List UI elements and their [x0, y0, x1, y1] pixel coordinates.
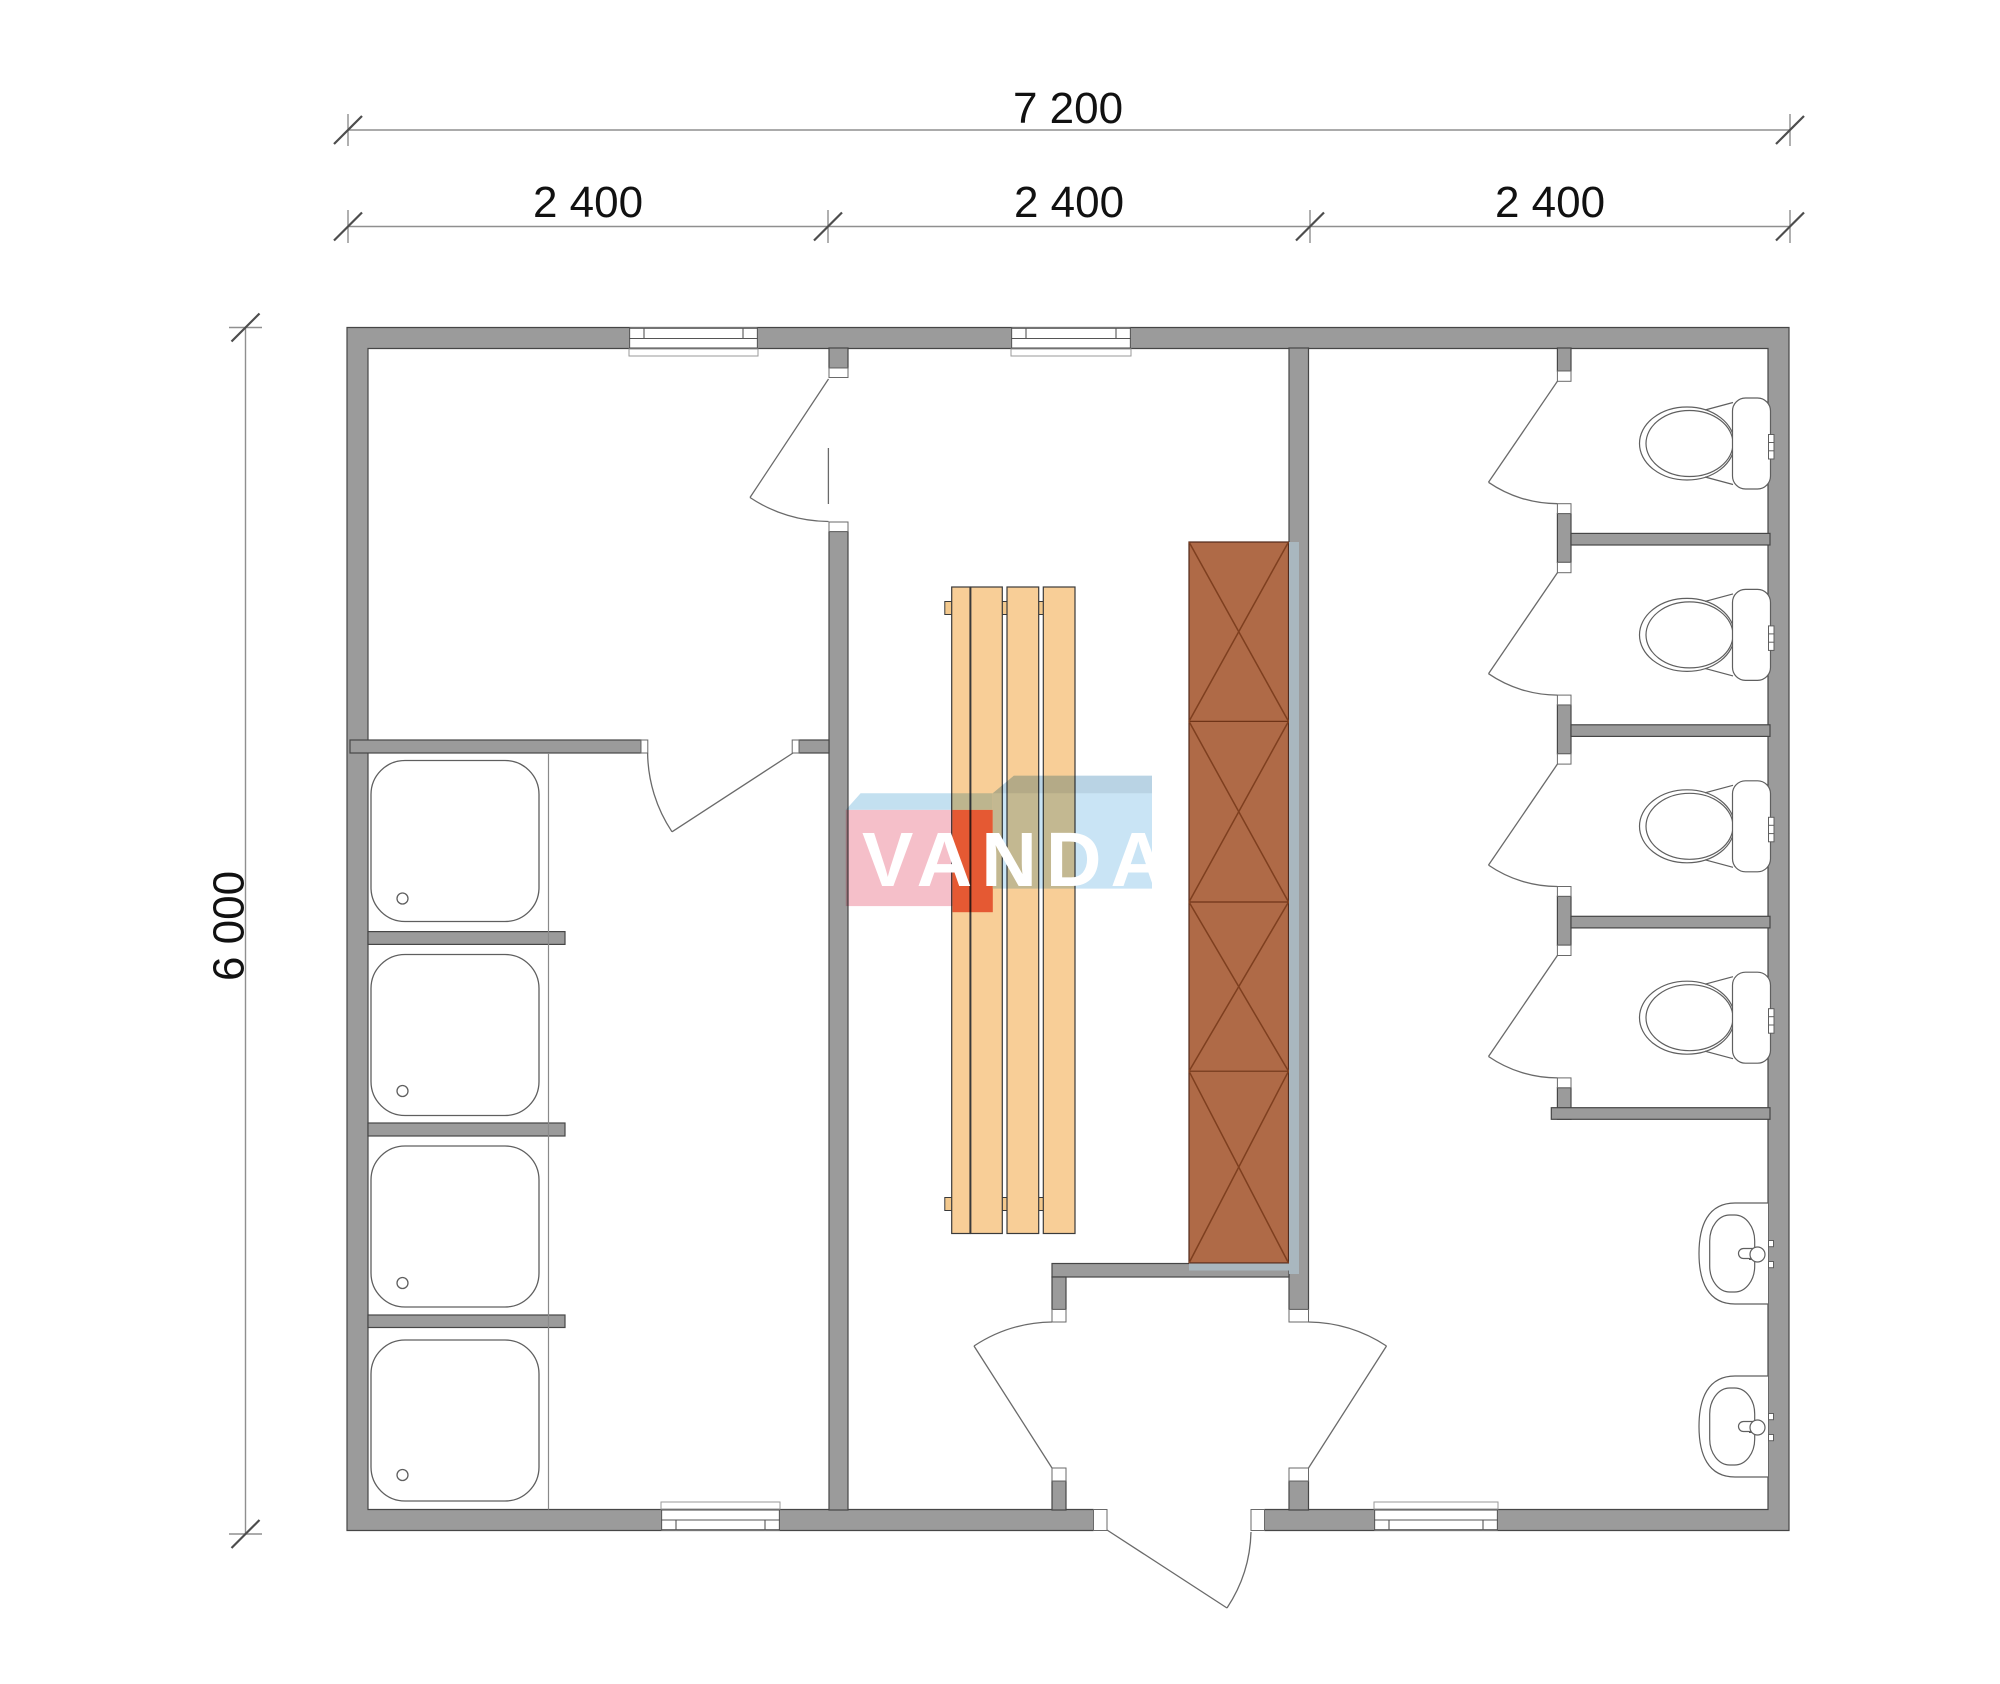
svg-text:2 400: 2 400: [1014, 178, 1124, 227]
svg-text:7 200: 7 200: [1013, 84, 1123, 133]
svg-text:2 400: 2 400: [1495, 178, 1605, 227]
svg-text:6 000: 6 000: [205, 871, 254, 981]
svg-text:VANDA: VANDA: [862, 817, 1175, 903]
svg-text:2 400: 2 400: [533, 178, 643, 227]
